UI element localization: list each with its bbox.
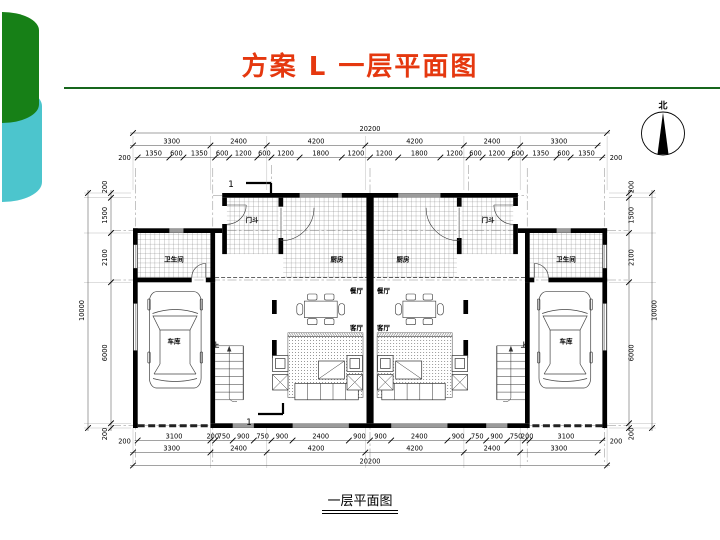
- stairs: [215, 346, 243, 402]
- dwelling-unit: [133, 193, 370, 428]
- room-label-kitchen: 厨房: [397, 255, 411, 264]
- dimension-label: 600: [170, 149, 183, 157]
- dimension-label: 1350: [578, 149, 595, 157]
- dimension-label: 1200: [446, 149, 463, 157]
- dimension-label: 200: [628, 428, 636, 441]
- room-label-vestibule: 门斗: [246, 215, 260, 224]
- compass-needle: [658, 113, 669, 155]
- page-title: 方案 L 一层平面图: [0, 46, 720, 83]
- dimension-label: 200: [118, 438, 131, 446]
- dimension-label: 900: [452, 432, 465, 440]
- dimension-label: 4200: [308, 444, 325, 452]
- dimension-label: 900: [276, 432, 289, 440]
- dining-set: [297, 294, 345, 325]
- dimension-label: 10000: [651, 300, 659, 321]
- dimension-label: 2100: [628, 249, 636, 266]
- dimension-label: 600: [557, 149, 570, 157]
- dimension-label: 3300: [550, 137, 567, 145]
- dimension-label: 1200: [376, 149, 393, 157]
- dimension-label: 1200: [235, 149, 252, 157]
- dimension-label: 2400: [484, 444, 501, 452]
- dimension-label: 6000: [101, 344, 109, 361]
- dimension-label: 3300: [550, 444, 567, 452]
- dimension-label: 1200: [488, 149, 505, 157]
- dimension-label: 1500: [101, 207, 109, 224]
- dimension-label: 1350: [532, 149, 549, 157]
- dimension-label: 1500: [628, 207, 636, 224]
- room-label-living: 客厅: [349, 323, 364, 332]
- dimension-label: 3300: [163, 137, 180, 145]
- dimension-label: 200: [118, 154, 131, 162]
- dimension-label: 1200: [348, 149, 365, 157]
- dimension-label: 2100: [101, 249, 109, 266]
- dimension-label: 1200: [277, 149, 294, 157]
- dimension-label: 10000: [78, 300, 86, 321]
- title-rule: [64, 87, 720, 89]
- room-label-dining: 餐厅: [376, 286, 391, 295]
- plan-caption-text: 一层平面图: [322, 490, 397, 514]
- dimension-label: 200: [101, 428, 109, 441]
- dimension-label: 3300: [163, 444, 180, 452]
- room-label-living: 客厅: [376, 323, 391, 332]
- dimension-label: 900: [490, 432, 503, 440]
- dimension-label: 1800: [411, 149, 428, 157]
- dimension-label: 750: [256, 432, 269, 440]
- room-label-up: 上: [521, 340, 528, 349]
- dimension-label: 4200: [308, 137, 325, 145]
- room-label-up: 上: [213, 340, 220, 349]
- room-label-dining: 餐厅: [349, 286, 364, 295]
- dimension-label: 200: [101, 181, 109, 194]
- room-label-bathroom: 卫生间: [556, 255, 576, 264]
- dimension-label: 4200: [406, 444, 423, 452]
- dimension-label: 900: [374, 432, 387, 440]
- dimension-label: 1350: [145, 149, 162, 157]
- plan-caption: 一层平面图: [0, 490, 720, 514]
- carpet-edge: [288, 333, 363, 337]
- dimension-label: 4200: [406, 137, 423, 145]
- section-marker-top: 1: [228, 180, 234, 190]
- compass-north-label: 北: [658, 100, 667, 112]
- dimension-label: 600: [258, 149, 271, 157]
- dimension-label: 200: [521, 432, 534, 440]
- dimension-label: 600: [469, 149, 482, 157]
- room-label-kitchen: 厨房: [331, 255, 345, 264]
- section-marker-bottom: 1: [246, 418, 252, 428]
- dimension-label: 2400: [230, 137, 247, 145]
- dimension-label: 900: [237, 432, 250, 440]
- dimension-label: 600: [216, 149, 229, 157]
- dimension-label: 20200: [360, 457, 381, 465]
- room-label-garage: 车库: [168, 337, 182, 346]
- dimension-label: 750: [218, 432, 231, 440]
- dimension-label: 2400: [484, 137, 501, 145]
- dimension-label: 1350: [191, 149, 208, 157]
- dimension-label: 20200: [360, 125, 381, 133]
- slide: { "slide": { "title": "方案 L 一层平面图", "cap…: [0, 0, 720, 540]
- room-label-bathroom: 卫生间: [164, 255, 184, 264]
- dimension-label: 750: [471, 432, 484, 440]
- dimension-label: 2400: [230, 444, 247, 452]
- dimension-label: 2400: [411, 432, 428, 440]
- dimension-label: 1800: [312, 149, 329, 157]
- room-label-garage: 车库: [560, 337, 574, 346]
- dimension-label: 200: [610, 154, 623, 162]
- dimension-label: 3100: [558, 432, 575, 440]
- dimension-label: 2400: [312, 432, 329, 440]
- compass: [642, 112, 685, 155]
- dimension-label: 600: [512, 149, 525, 157]
- dimension-label: 3100: [166, 432, 183, 440]
- dimension-label: 900: [353, 432, 366, 440]
- room-label-vestibule: 门斗: [482, 215, 496, 224]
- dimension-label: 200: [610, 438, 623, 446]
- dimension-label: 6000: [628, 344, 636, 361]
- dimension-label: 200: [628, 181, 636, 194]
- vestibule-floor: [227, 198, 279, 254]
